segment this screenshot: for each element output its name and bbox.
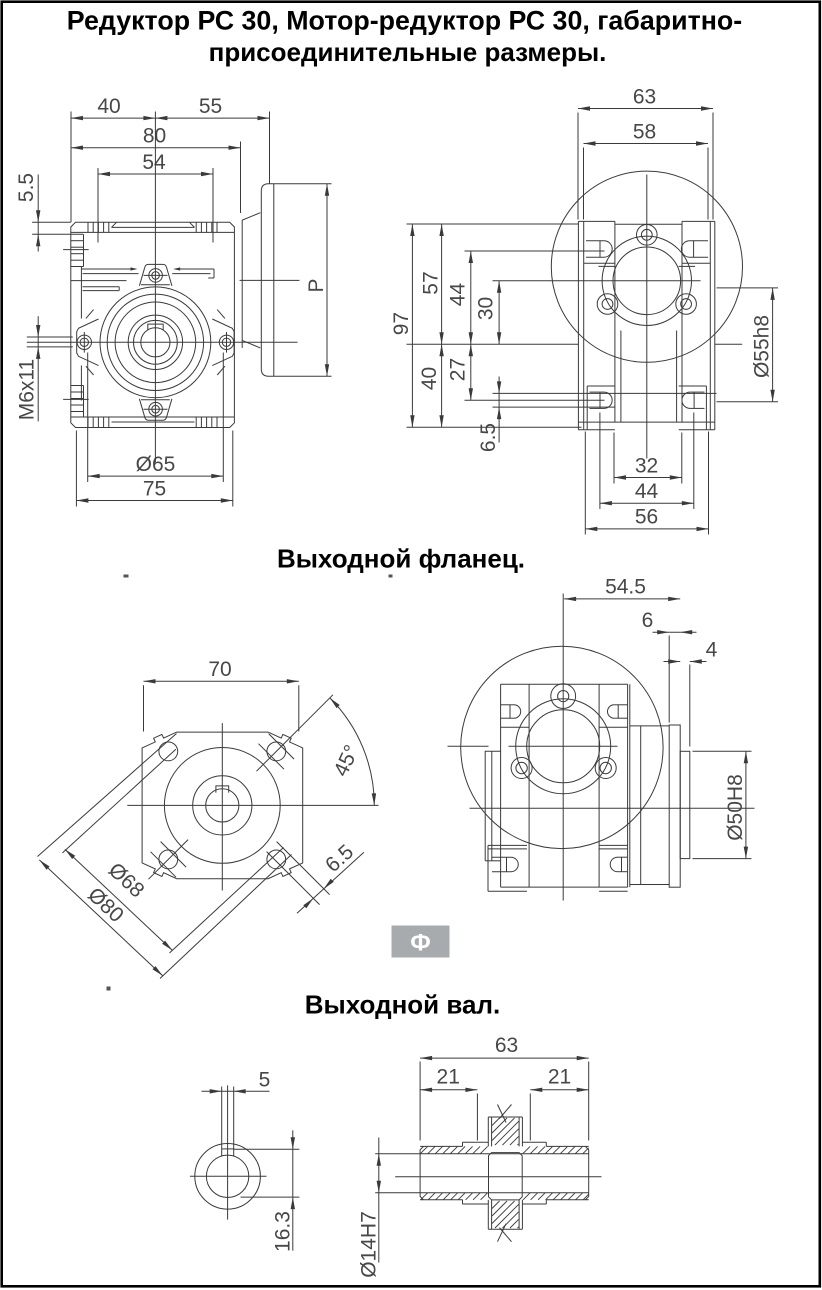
svg-text:27: 27 [447,358,470,381]
svg-text:Ø14H7: Ø14H7 [357,1211,380,1278]
svg-text:75: 75 [143,477,166,500]
svg-text:6.5: 6.5 [321,840,358,877]
svg-text:4: 4 [706,638,718,661]
svg-text:Ø55h8: Ø55h8 [750,315,773,378]
svg-text:Выходной фланец.: Выходной фланец. [277,544,525,574]
svg-text:54.5: 54.5 [605,576,646,599]
svg-text:56: 56 [635,506,658,529]
svg-text:44: 44 [635,480,659,503]
svg-text:5.5: 5.5 [15,173,38,202]
svg-text:97: 97 [390,312,413,335]
svg-text:40: 40 [418,367,441,390]
svg-text:21: 21 [437,1066,460,1089]
svg-text:54: 54 [142,151,166,174]
svg-text:40: 40 [97,95,120,118]
svg-text:Ø50H8: Ø50H8 [724,774,747,841]
svg-text:6: 6 [642,609,654,632]
svg-text:30: 30 [475,297,498,320]
svg-text:45°: 45° [329,741,363,780]
svg-text:Редуктор РС 30, Мотор-редуктор: Редуктор РС 30, Мотор-редуктор РС 30, га… [67,6,742,36]
svg-text:58: 58 [633,120,656,143]
svg-text:Выходной вал.: Выходной вал. [305,990,500,1020]
svg-text:57: 57 [419,271,442,294]
svg-text:63: 63 [633,85,656,108]
svg-text:55: 55 [199,95,222,118]
svg-text:44: 44 [447,283,470,307]
svg-text:5: 5 [259,1069,271,1092]
svg-text:присоединительные размеры.: присоединительные размеры. [209,37,607,67]
svg-text:21: 21 [548,1066,571,1089]
svg-text:80: 80 [143,125,166,148]
svg-text:70: 70 [208,658,231,681]
svg-text:16.3: 16.3 [272,1211,295,1252]
svg-text:Ф: Ф [410,930,430,957]
svg-text:63: 63 [495,1034,518,1057]
svg-text:P: P [305,278,328,292]
svg-text:M6x11: M6x11 [16,359,39,420]
svg-text:32: 32 [635,454,658,477]
